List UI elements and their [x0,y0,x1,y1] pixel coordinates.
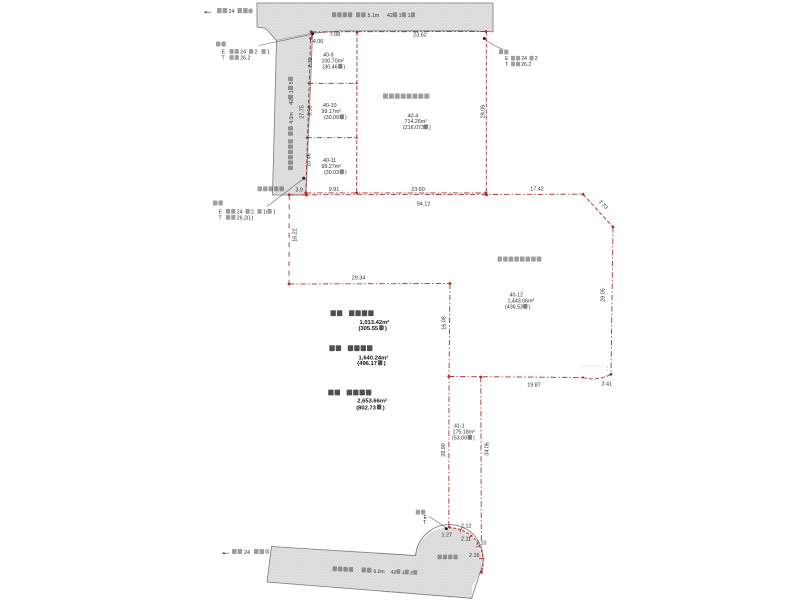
svg-text:29.05: 29.05 [601,288,607,302]
svg-text:26.2: 26.2 [521,62,531,68]
svg-text:1: 1 [273,210,276,216]
svg-text:10.46: 10.46 [306,153,312,167]
svg-text:5: 5 [289,81,295,84]
svg-text:(216.073: (216.073 [403,125,424,131]
svg-text:2.11: 2.11 [461,537,471,543]
svg-text:24: 24 [229,9,235,15]
svg-text:): ) [345,170,347,176]
svg-text:(30.03: (30.03 [324,170,339,176]
svg-text:23.60: 23.60 [411,187,425,193]
svg-text:26.2(L): 26.2(L) [237,216,254,222]
svg-text:1,013.42m²: 1,013.42m² [360,319,390,326]
svg-text:16.08: 16.08 [442,316,448,330]
svg-text:4.06: 4.06 [313,39,324,45]
svg-text:): ) [345,115,347,121]
svg-text:1: 1 [408,13,411,19]
svg-text:94.12: 94.12 [417,202,431,208]
svg-text:): ) [429,125,431,131]
svg-text:5.1m: 5.1m [368,13,380,19]
svg-text:): ) [343,65,345,71]
svg-text:(30.46: (30.46 [323,65,338,71]
svg-text:24: 24 [244,550,250,556]
svg-text:1.27: 1.27 [442,533,453,539]
svg-text:): ) [473,436,475,442]
svg-text:17.42: 17.42 [530,186,544,192]
svg-text:): ) [385,326,387,332]
svg-text:3.41: 3.41 [602,382,613,388]
svg-text:): ) [384,361,386,367]
svg-text:2.10: 2.10 [476,541,487,547]
svg-text:42: 42 [387,13,393,19]
svg-text:(30.00: (30.00 [324,115,339,121]
svg-text:7.72: 7.72 [308,57,314,68]
svg-text:7.08: 7.08 [330,32,341,38]
svg-text:1: 1 [399,13,402,19]
svg-text:34.06: 34.06 [485,442,491,456]
svg-text:28.90: 28.90 [441,443,447,457]
svg-text:19.87: 19.87 [527,383,541,389]
svg-text:9.58: 9.58 [307,105,313,116]
svg-text:2.16: 2.16 [469,553,480,559]
svg-text:9.91: 9.91 [329,187,340,193]
svg-text:42: 42 [390,569,396,575]
svg-text:26.2: 26.2 [240,56,250,62]
svg-text:(53.00: (53.00 [452,436,467,442]
svg-text:4.0m: 4.0m [289,112,295,124]
svg-text:29.34: 29.34 [352,276,366,282]
svg-text:42: 42 [289,99,295,105]
svg-text:2: 2 [255,50,258,56]
svg-text:29.06: 29.06 [481,105,487,119]
svg-text:(802.73: (802.73 [356,406,376,412]
svg-text:(496.17: (496.17 [357,361,377,367]
svg-text:1: 1 [402,570,405,576]
svg-text:16.22: 16.22 [292,228,298,242]
svg-text:(305.55: (305.55 [359,326,379,332]
svg-text:(436.53: (436.53 [505,305,523,311]
svg-text:2: 2 [410,570,413,576]
svg-text:3.9: 3.9 [296,188,304,194]
svg-text:2,653.66m²: 2,653.66m² [357,398,387,405]
svg-text:): ) [528,305,530,311]
svg-text:6.0m: 6.0m [373,569,384,575]
svg-text:27.75: 27.75 [299,105,305,119]
svg-text:2.12: 2.12 [461,524,472,530]
svg-text:1: 1 [289,90,295,93]
svg-text:23.62: 23.62 [413,32,427,38]
svg-text:2: 2 [535,56,538,62]
svg-text:1: 1 [267,50,270,56]
svg-text:T: T [505,62,508,68]
svg-text:): ) [383,406,385,412]
svg-text:1/: 1/ [263,210,268,216]
